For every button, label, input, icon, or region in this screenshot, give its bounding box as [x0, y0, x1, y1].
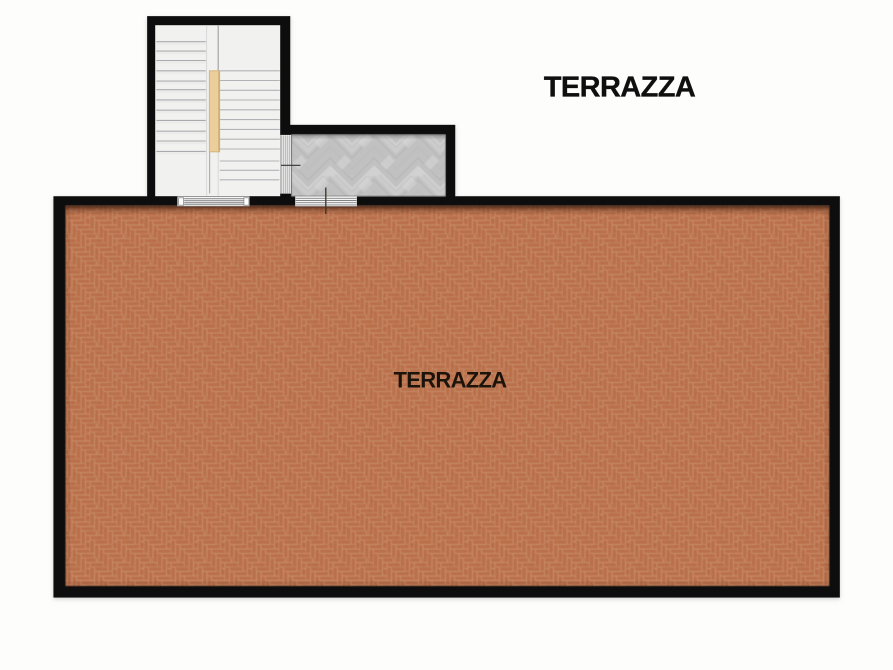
svg-text:TERRAZZA: TERRAZZA: [544, 71, 696, 103]
svg-text:TERRAZZA: TERRAZZA: [394, 368, 508, 393]
